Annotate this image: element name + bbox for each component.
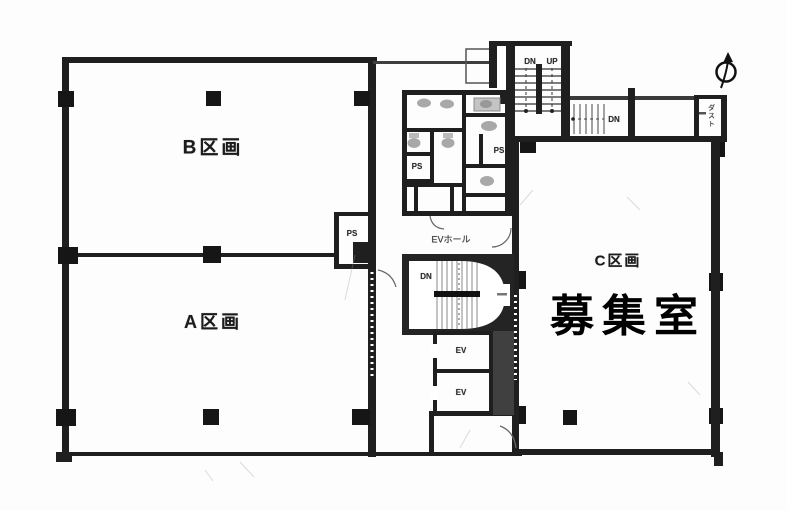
label-section-b: B区画 <box>183 139 244 158</box>
label-section-c: C区画 <box>595 254 642 269</box>
label-stair-top-up: UP <box>546 58 557 66</box>
north-arrow-icon <box>717 52 736 88</box>
label-ps-west: PS <box>412 163 423 171</box>
label-elevator-2: EV <box>456 389 467 397</box>
label-stair-east-dn: DN <box>608 116 620 124</box>
floorplan-page: B区画 A区画 C区画 募集室 EVホール DN UP DN DN EV EV … <box>0 0 787 510</box>
label-stair-core-dn: DN <box>420 273 432 281</box>
label-ps-ab: PS <box>347 230 358 238</box>
stairwell-top <box>489 41 572 216</box>
elevator-shafts <box>429 331 519 455</box>
stair-core <box>402 254 514 335</box>
canopy-outline <box>466 49 490 83</box>
stair-east <box>570 88 698 138</box>
door-arc-utility <box>430 216 444 229</box>
sanitary-fixtures <box>408 98 501 186</box>
label-ev-hall: EVホール <box>431 236 470 245</box>
label-ps-east: PS <box>494 147 505 155</box>
label-duct-space: ダスト <box>708 104 715 128</box>
label-vacancy: 募集室 <box>550 295 706 339</box>
label-section-a: A区画 <box>184 313 242 331</box>
label-stair-top-dn: DN <box>524 58 536 66</box>
floorplan-drawing <box>0 0 787 510</box>
utility-block <box>402 90 514 229</box>
label-elevator-1: EV <box>456 347 467 355</box>
